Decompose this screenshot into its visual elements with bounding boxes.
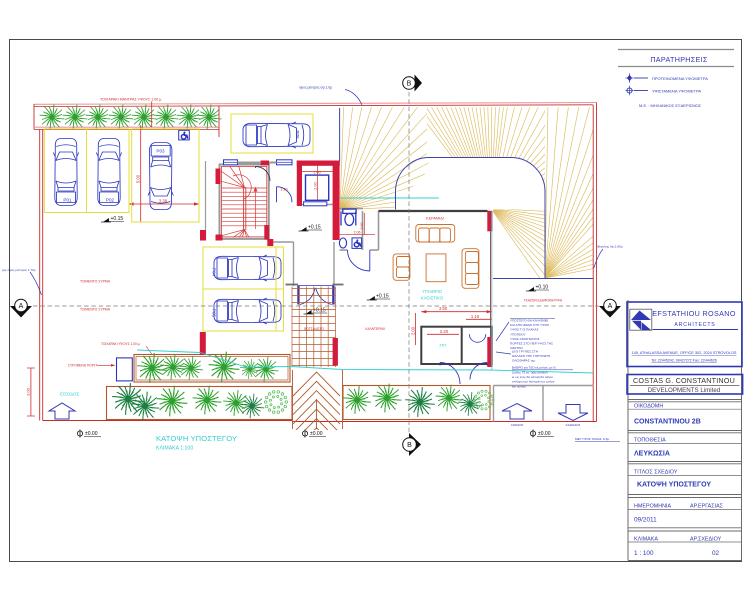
svg-text:ΤΟΙΧΑΡΑΚΙ ΜΑΝΤΡΑΣ ΥΨΟΥΣ 1.00 μ: ΤΟΙΧΑΡΑΚΙ ΜΑΝΤΡΑΣ ΥΨΟΥΣ 1.00 μ. — [100, 98, 162, 102]
svg-text:ΖΝΤ: ΖΝΤ — [439, 344, 447, 348]
svg-text:ΚΕΡΑΜΙΔΙ: ΚΕΡΑΜΙΔΙ — [426, 217, 444, 221]
svg-text:±0.00: ±0.00 — [538, 431, 551, 437]
svg-text:P06: P06 — [295, 130, 300, 139]
svg-text:145, ATHALASSA AVENUE, OFFICE: 145, ATHALASSA AVENUE, OFFICE 302, 2024 … — [632, 351, 737, 355]
svg-text:1.10: 1.10 — [471, 314, 480, 319]
svg-text:κι ως ελεγ.θα καλυψ.θα αλλον: κι ως ελεγ.θα καλυψ.θα αλλον — [512, 375, 553, 379]
svg-text:σπληρωτ.μι θολωμένη η μπλεκ: σπληρωτ.μι θολωμένη η μπλεκ — [512, 380, 555, 384]
svg-text:ύψος μάντρας ύψ.1.0μ: ύψος μάντρας ύψ.1.0μ — [299, 86, 332, 90]
svg-text:ΥΠΑΙΘΡΙΟ: ΥΠΑΙΘΡΙΟ — [422, 289, 443, 294]
svg-text:+0.15: +0.15 — [376, 294, 389, 300]
svg-text:P03: P03 — [156, 149, 165, 154]
svg-text:CONSTANTINOU 2B: CONSTANTINOU 2B — [634, 419, 701, 426]
svg-text:ΤΟΙΧΑΡΑΚΙ ΥΨΟΥΣ 1.00 μ.: ΤΟΙΧΑΡΑΚΙ ΥΨΟΥΣ 1.00 μ. — [101, 342, 140, 346]
svg-text:09/2011: 09/2011 — [634, 517, 657, 524]
svg-text:Φεγγίτης ύψ.1.80μ: Φεγγίτης ύψ.1.80μ — [597, 245, 623, 249]
svg-text:2.00: 2.00 — [360, 223, 364, 230]
svg-text:5.00: 5.00 — [136, 174, 141, 183]
svg-text:ΤΟΠΟΘΕΣΙΑ: ΤΟΠΟΘΕΣΙΑ — [634, 438, 666, 444]
svg-text:ΑΡ.ΕΡΓΑΣΙΑΣ: ΑΡ.ΕΡΓΑΣΙΑΣ — [690, 504, 724, 510]
svg-text:P01: P01 — [63, 198, 72, 203]
svg-text:A: A — [608, 303, 613, 310]
svg-text:ΒΑΘΡΟ για 75Ο εκ.μπλεκ. με Ν.: ΒΑΘΡΟ για 75Ο εκ.μπλεκ. με Ν. — [512, 366, 557, 370]
svg-text:ΜΕΓ.ΥΨΟΣ ΟΙΚΟΔ. 8.3μ: ΜΕΓ.ΥΨΟΣ ΟΙΚΟΔ. 8.3μ — [575, 437, 609, 441]
svg-text:+0.15: +0.15 — [308, 225, 321, 231]
svg-text:2.00: 2.00 — [410, 326, 415, 335]
svg-text:ΣΥΡΟΜΕΝΗ ΠΟΡΤΑ: ΣΥΡΟΜΕΝΗ ΠΟΡΤΑ — [68, 364, 99, 368]
svg-text:ΠΟΡΤΕΣ ΣΤΟ ΠΕΡ.ΥΨΟΣ ΤΗΣ: ΠΟΡΤΕΣ ΣΤΟ ΠΕΡ.ΥΨΟΣ ΤΗΣ — [510, 342, 553, 346]
svg-text:1 : 100: 1 : 100 — [634, 550, 654, 557]
svg-text:1.20: 1.20 — [281, 188, 288, 192]
svg-text:+0.10: +0.10 — [536, 285, 549, 291]
svg-text:P05: P05 — [212, 309, 217, 318]
svg-text:ΟΛΙΣΘΗΡΑΣ τεμ.: ΟΛΙΣΘΗΡΑΣ τεμ. — [512, 359, 536, 363]
svg-text:Tel: 22445242, 99427272 F: Tel: 22445242, 99427272 Fax: 22444626 — [651, 359, 717, 363]
svg-text:ΥΨΟΣ Τ ΙΣ ΠΛΑΚΑΣ: ΥΨΟΣ Τ ΙΣ ΠΛΑΚΑΣ — [510, 328, 539, 332]
svg-text:A: A — [19, 303, 24, 310]
svg-text:EFSTATHIOU ROSANO: EFSTATHIOU ROSANO — [652, 309, 736, 318]
svg-text:ΤΣΙΜΕΝΤΟ ΣΥΡΜΑ: ΤΣΙΜΕΝΤΟ ΣΥΡΜΑ — [80, 280, 111, 284]
svg-text:±0.00: ±0.00 — [310, 431, 323, 437]
svg-text:2.00: 2.00 — [313, 182, 317, 189]
svg-text:ΔΥΟ ΤΡΥΠΕΣ ΣΤΗ: ΔΥΟ ΤΡΥΠΕΣ ΣΤΗ — [512, 350, 538, 354]
svg-text:ΥΠΟΣΤΕΓΟ ΘΑ ΚΑΛΥΦΘΕΙ: ΥΠΟΣΤΕΓΟ ΘΑ ΚΑΛΥΦΘΕΙ — [510, 319, 548, 323]
svg-text:ΚΑΘΙΣΤΙΚΟ: ΚΑΘΙΣΤΙΚΟ — [421, 296, 444, 301]
svg-text:DEVELOPMENTS Limited: DEVELOPMENTS Limited — [648, 387, 721, 394]
svg-text:ΠΡΟΤΕΙΝΟΜΕΝΑ ΥΨΟΜΕΤΡΑ: ΠΡΟΤΕΙΝΟΜΕΝΑ ΥΨΟΜΕΤΡΑ — [652, 76, 708, 81]
svg-text:ΚΑΘΟΔΟΣ: ΚΑΘΟΔΟΣ — [566, 423, 581, 427]
svg-text:ΥΦΙΣΤΑΜΕΝΑ ΥΨΟΜΕΤΡΑ: ΥΦΙΣΤΑΜΕΝΑ ΥΨΟΜΕΤΡΑ — [652, 89, 701, 94]
svg-text:2.00: 2.00 — [313, 170, 320, 174]
svg-text:ΒΟΤΣΑΛΩΤΟ: ΒΟΤΣΑΛΩΤΟ — [304, 327, 324, 331]
svg-text:ΤΙΤΛΟΣ ΣΧΕΔΙΟΥ: ΤΙΤΛΟΣ ΣΧΕΔΙΟΥ — [634, 470, 678, 476]
svg-text:Μ.Ε. : ΜΗΧΑΝΙΚΟΣ ΕΞΑΕΡΙΣΜΟΣ: Μ.Ε. : ΜΗΧΑΝΙΚΟΣ ΕΞΑΕΡΙΣΜΟΣ — [639, 103, 702, 108]
svg-text:ΚΑΙ ΑΠΟ ΦΑΝΟ ΣΤΟ ΥΨΟΣ: ΚΑΙ ΑΠΟ ΦΑΝΟ ΣΤΟ ΥΨΟΣ — [510, 323, 549, 327]
svg-text:και αστικό: και αστικό — [512, 384, 526, 388]
svg-text:ΤΣΙΜΕΝΤΟ ΣΥΡΜΑ: ΤΣΙΜΕΝΤΟ ΣΥΡΜΑ — [80, 308, 111, 312]
svg-text:Ζώδες 75 εκ. ύψη αστικού: Ζώδες 75 εκ. ύψη αστικού — [512, 371, 548, 375]
svg-text:±0.00: ±0.00 — [85, 431, 98, 437]
svg-text:ΚΑΛΝΤΕΡΙΜΙ: ΚΑΛΝΤΕΡΙΜΙ — [365, 327, 384, 331]
svg-text:P02: P02 — [106, 198, 115, 203]
svg-text:P04: P04 — [212, 268, 217, 277]
svg-text:ΠΑΡΑΤΗΡΗΣΕΙΣ: ΠΑΡΑΤΗΡΗΣΕΙΣ — [650, 55, 708, 64]
svg-text:ΟΙΚΟΔΟΜΗ: ΟΙΚΟΔΟΜΗ — [634, 404, 663, 410]
svg-text:ΑΡ.ΣΧΕΔΙΟΥ: ΑΡ.ΣΧΕΔΙΟΥ — [690, 537, 722, 543]
svg-text:ΚΑΤΟΨΗ ΥΠΟΣΤΕΓΟΥ: ΚΑΤΟΨΗ ΥΠΟΣΤΕΓΟΥ — [637, 482, 711, 489]
svg-text:ΓΚΑΖΟΝ ΕΔΑΦΟΚΑΛΥΨΗ: ΓΚΑΖΟΝ ΕΔΑΦΟΚΑΛΥΨΗ — [524, 299, 563, 303]
svg-text:ΥΠΟΓΕΙΟΥ: ΥΠΟΓΕΙΟΥ — [510, 332, 526, 336]
svg-text:B: B — [407, 442, 412, 449]
svg-text:B: B — [407, 81, 412, 88]
svg-text:02: 02 — [712, 550, 720, 557]
svg-text:ΚΑΤΟΨΗ ΥΠΟΣΤΕΓΟΥ: ΚΑΤΟΨΗ ΥΠΟΣΤΕΓΟΥ — [156, 434, 237, 443]
svg-text:ΚΛΙΜΑΚΑ: ΚΛΙΜΑΚΑ — [634, 537, 658, 543]
svg-text:+0.15: +0.15 — [111, 216, 124, 222]
svg-text:ΕΙΣΟΔΟΣ: ΕΙΣΟΔΟΣ — [60, 392, 79, 397]
svg-text:ΛΕΥΚΩΣΙΑ: ΛΕΥΚΩΣΙΑ — [634, 451, 670, 458]
svg-text:3.50: 3.50 — [439, 306, 448, 311]
svg-text:ΥΨΟΣ ΑΝΟΙΓΜΑΤΟΣ: ΥΨΟΣ ΑΝΟΙΓΜΑΤΟΣ — [510, 337, 540, 341]
svg-text:ARCHITECTS: ARCHITECTS — [674, 322, 715, 328]
svg-text:2.20: 2.20 — [440, 329, 449, 334]
svg-text:ΗΜΕΡΟΜΗΝΙΑ: ΗΜΕΡΟΜΗΝΙΑ — [634, 504, 672, 510]
svg-text:+0.15: +0.15 — [313, 308, 326, 314]
svg-text:ΑΝΟΔΟΣ: ΑΝΟΔΟΣ — [511, 423, 524, 427]
svg-text:COSTAS G. CONSTANTINOU: COSTAS G. CONSTANTINOU — [633, 376, 735, 385]
svg-text:ΘΑΛΑΣΣΙ ΤΗΣ ΤΟΡΤΣΙΩΤΗ: ΘΑΛΑΣΣΙ ΤΗΣ ΤΟΡΤΣΙΩΤΗ — [512, 354, 550, 358]
svg-text:μεγ.ύψος μάντρας 1.70μ: μεγ.ύψος μάντρας 1.70μ — [2, 268, 36, 272]
svg-text:3.00: 3.00 — [26, 387, 31, 396]
svg-text:2.06: 2.06 — [354, 231, 361, 235]
svg-text:ΚΛΙΜΑΚΑ 1:100: ΚΛΙΜΑΚΑ 1:100 — [156, 446, 193, 452]
